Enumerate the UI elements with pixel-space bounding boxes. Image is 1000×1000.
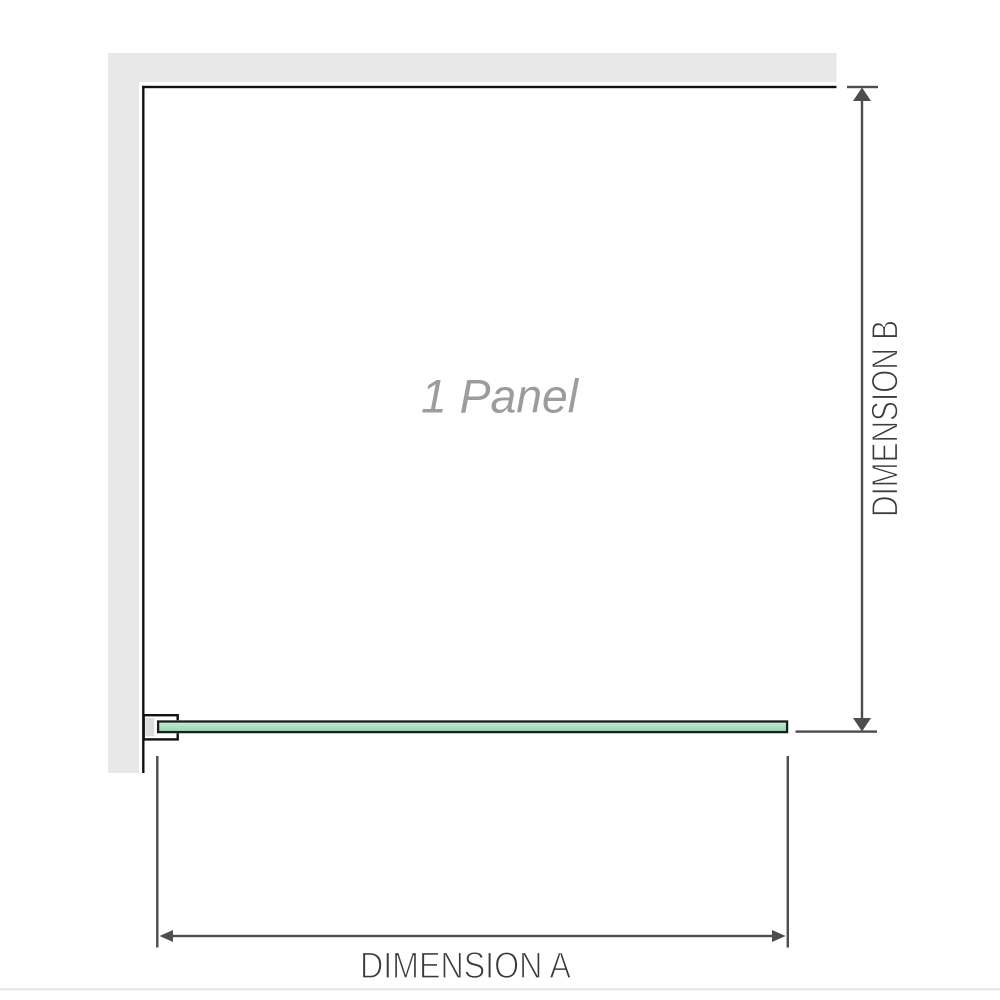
svg-text:DIMENSION A: DIMENSION A: [360, 944, 571, 986]
svg-text:1 Panel: 1 Panel: [421, 370, 580, 423]
svg-text:DIMENSION B: DIMENSION B: [864, 320, 906, 517]
